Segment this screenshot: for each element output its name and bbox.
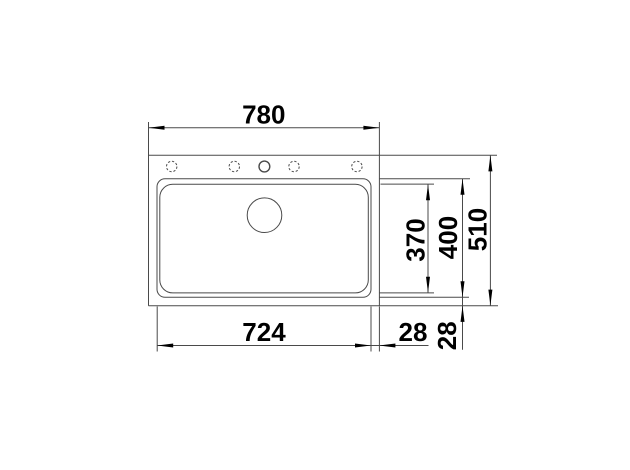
svg-text:28: 28 [399,317,428,347]
svg-text:370: 370 [401,218,431,261]
svg-text:510: 510 [463,208,493,251]
svg-text:780: 780 [242,100,285,130]
svg-text:400: 400 [433,216,463,259]
svg-text:724: 724 [242,317,286,347]
svg-text:28: 28 [432,321,462,350]
